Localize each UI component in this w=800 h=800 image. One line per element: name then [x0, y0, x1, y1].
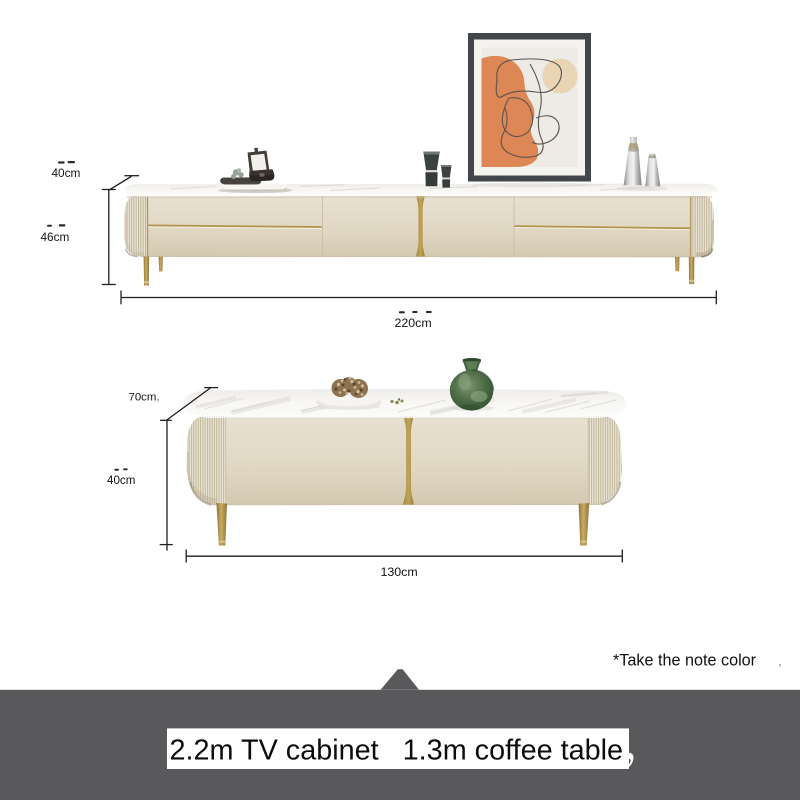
svg-text:40cm: 40cm [107, 474, 135, 487]
svg-text:*Take the note color: *Take the note color [613, 652, 757, 670]
svg-text:2.2m TV cabinet 1.3m coffee: 2.2m TV cabinet 1.3m coffee table [170, 735, 624, 767]
svg-text:220cm: 220cm [395, 316, 432, 330]
svg-text:40cm: 40cm [52, 166, 81, 180]
svg-text:130cm: 130cm [381, 565, 418, 579]
svg-text:70cm.: 70cm. [129, 392, 160, 404]
svg-text:46cm: 46cm [41, 230, 70, 244]
